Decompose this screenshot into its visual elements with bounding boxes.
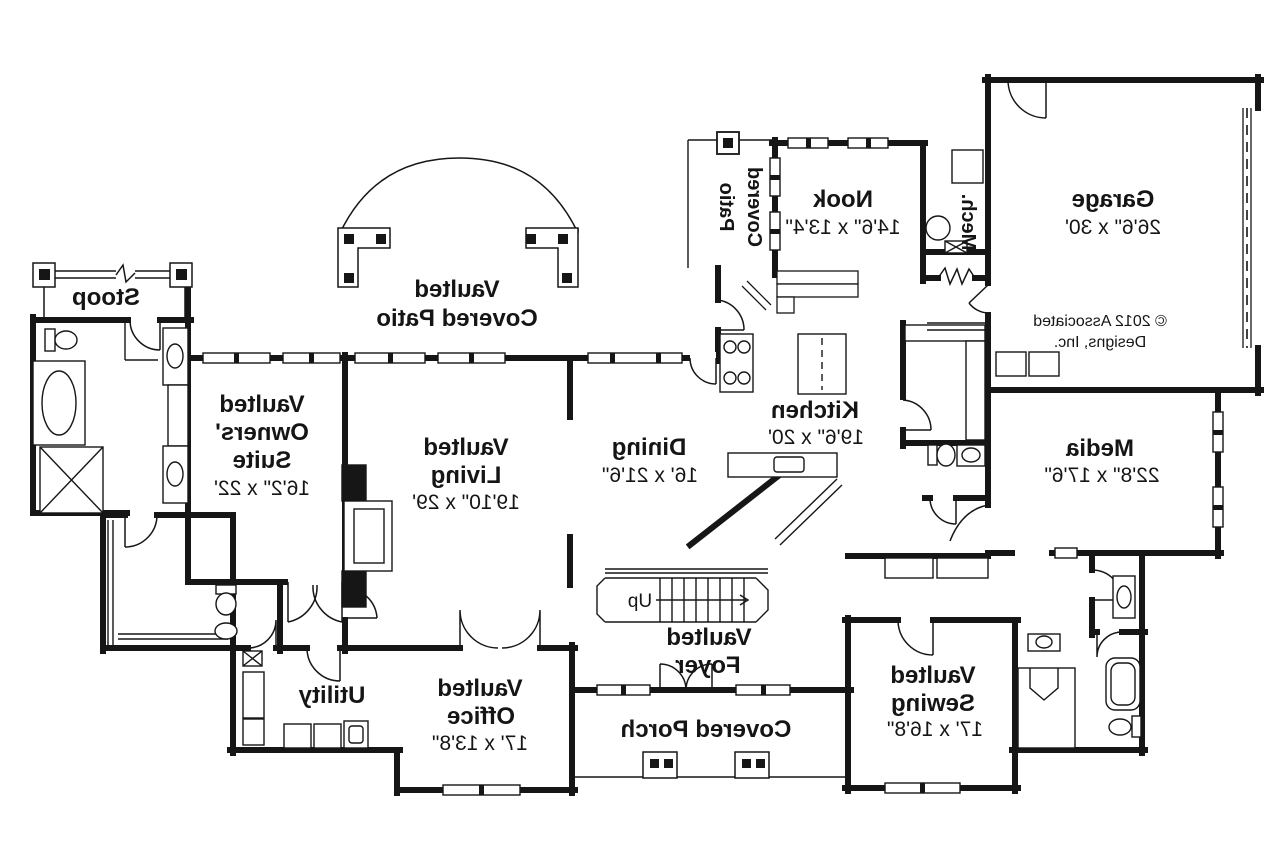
room-dims-dining: 16' x 21'6"	[602, 464, 698, 487]
office-french-doors	[460, 610, 540, 648]
pantry-door	[903, 400, 931, 430]
room-label-sewing-1: Vaulted	[890, 662, 975, 689]
pantry-shelf-top	[905, 325, 985, 341]
room-label-living-1: Vaulted	[423, 434, 508, 461]
room-dims-owners: 16'2" x 22'	[214, 477, 310, 500]
stairs	[597, 569, 768, 622]
room-label-owners-3: Suite	[233, 447, 292, 474]
stoop-rail-break	[116, 265, 135, 282]
room-label-media: Media	[1065, 435, 1134, 462]
room-label-owners-2: Owners'	[215, 419, 309, 446]
room-dims-office: 17' x 13'8"	[432, 732, 528, 755]
patio-door-opening	[690, 352, 716, 364]
room-label-office-2: Office	[447, 703, 515, 730]
closet-door	[125, 515, 157, 547]
room-dims-garage: 26'6" x 30'	[1065, 216, 1161, 239]
room-label-sewing-2: Sewing	[891, 690, 975, 717]
utility-door	[307, 648, 340, 681]
bath-lower-door	[1097, 632, 1122, 657]
kitchen-patio-door	[718, 300, 744, 330]
right-bath	[1018, 576, 1141, 748]
room-label-dining: Dining	[612, 434, 687, 461]
room-label-nook: Nook	[812, 186, 873, 213]
room-label-stoop: Stoop	[72, 284, 140, 311]
copyright-line-2: Designs, Inc.	[1054, 334, 1146, 351]
room-label-utility: Utility	[298, 682, 365, 709]
toilet-tank	[45, 329, 55, 351]
room-label-side-patio-2: Patio	[715, 183, 737, 232]
floor-plan-canvas: Stoop Covered Patio Vaulted Covered Pati…	[0, 0, 1280, 853]
room-label-owners-1: Vaulted	[219, 391, 304, 418]
room-dims-nook: 14'6" x 13'4"	[785, 216, 900, 239]
nook-bench	[742, 271, 858, 313]
room-label-side-patio-1: Covered	[743, 167, 765, 247]
room-label-mech: Mech.	[957, 194, 979, 251]
fireplace-icon	[342, 465, 392, 607]
room-dims-sewing: 17' x 16'8"	[887, 718, 983, 741]
water-heater-icon	[926, 216, 950, 240]
room-label-living-2: Living	[431, 462, 502, 489]
stairs-up-label: Up	[628, 591, 652, 612]
room-label-garage: Garage	[1072, 186, 1155, 213]
hall-powder	[215, 585, 237, 639]
room-label-kitchen: Kitchen	[771, 397, 859, 424]
walls-kitchen-garage	[772, 77, 1261, 556]
room-label-foyer-1: Vaulted	[666, 624, 751, 651]
washer-icon	[284, 724, 311, 748]
mech-archway	[938, 268, 975, 284]
porch	[575, 752, 845, 778]
garage-door	[1243, 108, 1251, 348]
garage-entry-door	[969, 285, 988, 313]
labels: Stoop Covered Patio Vaulted Covered Pati…	[72, 167, 1167, 755]
sewing-door	[898, 620, 933, 655]
room-dims-kitchen: 19'6" x 20'	[768, 426, 864, 449]
room-label-porch: Covered Porch	[621, 716, 792, 743]
powder-north-door	[930, 498, 956, 524]
stoop-door	[130, 320, 160, 350]
window-hall-small	[1055, 548, 1077, 558]
copyright-line-1: © 2012 Associated	[1033, 313, 1167, 330]
owners-bath	[33, 320, 228, 645]
hall-counters	[885, 558, 988, 578]
toilet-icon	[55, 331, 77, 349]
powder-south-door	[248, 620, 276, 648]
suite-french-doors	[288, 582, 342, 622]
stairs-arrow	[656, 595, 748, 605]
room-dims-living: 19'10" x 29'	[412, 491, 520, 514]
kitchen-powder	[928, 444, 985, 466]
eating-bar	[775, 479, 842, 545]
garage-cabinets	[996, 352, 1059, 376]
garage-side-door	[1008, 80, 1046, 118]
room-dims-media: 22'8" x 17'6"	[1044, 464, 1159, 487]
patio-arch	[340, 158, 578, 233]
room-label-vaulted-patio-2: Covered Patio	[376, 305, 537, 332]
room-label-vaulted-patio-1: Vaulted	[414, 276, 499, 303]
walkin-closet	[1018, 668, 1075, 748]
furnace-icon	[952, 150, 983, 183]
makeup-counter	[168, 385, 188, 446]
utility-counter	[243, 672, 264, 718]
floor-plan-drawing: Stoop Covered Patio Vaulted Covered Pati…	[0, 0, 1280, 853]
dryer-icon	[314, 724, 341, 748]
pantry-shelf-side	[966, 341, 985, 440]
room-label-foyer-2: Foyer	[675, 652, 740, 679]
toilet-icon-2	[1109, 719, 1131, 735]
room-label-office-1: Vaulted	[437, 675, 522, 702]
kitchen-sink	[774, 457, 804, 472]
